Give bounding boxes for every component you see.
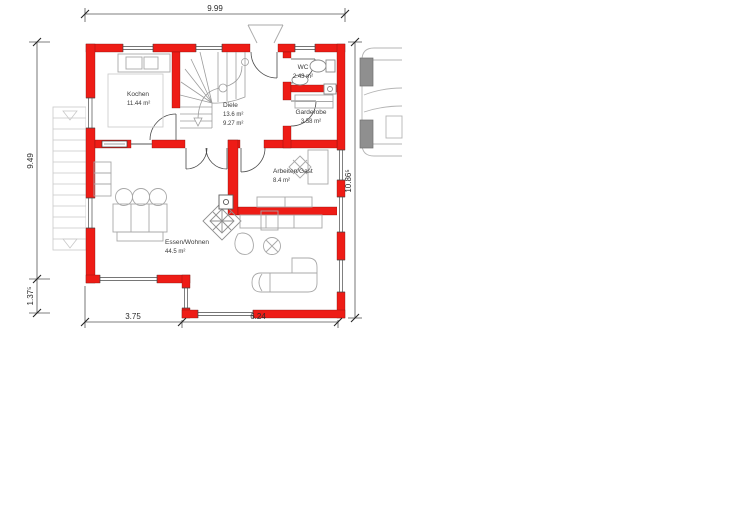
car-wheel-icon	[360, 120, 373, 148]
toilet-icon	[310, 60, 326, 72]
room-label-essen-wohnen: Essen/Wohnen 44.5 m²	[165, 239, 209, 255]
svg-text:Arbeiten/Gast: Arbeiten/Gast	[273, 168, 313, 175]
toilet-tank-icon	[326, 60, 335, 72]
double-door	[186, 148, 227, 169]
svg-text:WC: WC	[298, 64, 309, 71]
room-label-arbeiten-gast: Arbeiten/Gast 8.4 m²	[273, 168, 313, 184]
svg-text:Garderobe: Garderobe	[295, 109, 326, 116]
dimension-lines: 9.99 9.49 1.37⁵ 10.86⁵ 3.75 6.24	[26, 4, 362, 328]
floor-plan-page: 9.99 9.49 1.37⁵ 10.86⁵ 3.75 6.24 Koc	[0, 0, 750, 530]
entrance-canopy	[248, 25, 283, 43]
svg-text:Diele: Diele	[223, 102, 238, 109]
room-label-diele: Diele 13.6 m² 9.27 m²	[223, 102, 243, 127]
sink-icon	[144, 57, 158, 69]
lounge-sofa	[252, 258, 317, 292]
dim-right-label: 10.86⁵	[344, 169, 353, 192]
garderobe-furniture	[295, 95, 333, 108]
svg-text:44.5 m²: 44.5 m²	[165, 249, 185, 255]
floor-plan-drawing: 9.99 9.49 1.37⁵ 10.86⁵ 3.75 6.24 Koc	[0, 0, 750, 530]
dim-bottom-right-label: 6.24	[250, 312, 266, 321]
svg-text:2.43 m²: 2.43 m²	[293, 74, 313, 80]
study-furniture	[257, 150, 328, 207]
dim-top-label: 9.99	[207, 4, 223, 13]
svg-text:Kochen: Kochen	[127, 91, 149, 98]
svg-text:13.6 m²: 13.6 m²	[223, 112, 243, 118]
dimension-right: 10.86⁵	[344, 38, 362, 322]
svg-text:9.27 m²: 9.27 m²	[223, 121, 243, 127]
terrace-deck	[53, 107, 86, 250]
armchair	[235, 233, 254, 254]
dimension-top: 9.99	[81, 4, 349, 22]
study-door	[241, 148, 265, 172]
svg-text:8.4 m²: 8.4 m²	[273, 178, 290, 184]
svg-text:11.44 m²: 11.44 m²	[127, 101, 150, 107]
dim-bottom-left-label: 3.75	[125, 312, 141, 321]
car	[360, 48, 402, 156]
svg-text:3.58 m²: 3.58 m²	[301, 119, 321, 125]
car-wheel-icon	[360, 58, 373, 86]
sink-icon	[126, 57, 142, 69]
stair-direction-arrow-icon	[194, 118, 202, 126]
slope-arrow-icon	[63, 239, 77, 248]
entrance-door	[251, 52, 277, 78]
dim-left-lower-label: 1.37⁵	[26, 287, 35, 306]
chimney	[219, 195, 233, 209]
sideboard	[257, 197, 312, 207]
room-label-kochen: Kochen 11.44 m²	[127, 91, 150, 107]
slope-arrow-icon	[63, 111, 77, 120]
room-label-garderobe: Garderobe 3.58 m²	[295, 109, 326, 125]
svg-text:Essen/Wohnen: Essen/Wohnen	[165, 239, 209, 246]
sofa	[113, 189, 167, 242]
dimension-left: 9.49 1.37⁵	[26, 38, 50, 317]
dim-left-upper-label: 9.49	[26, 153, 35, 169]
side-table	[264, 238, 281, 255]
